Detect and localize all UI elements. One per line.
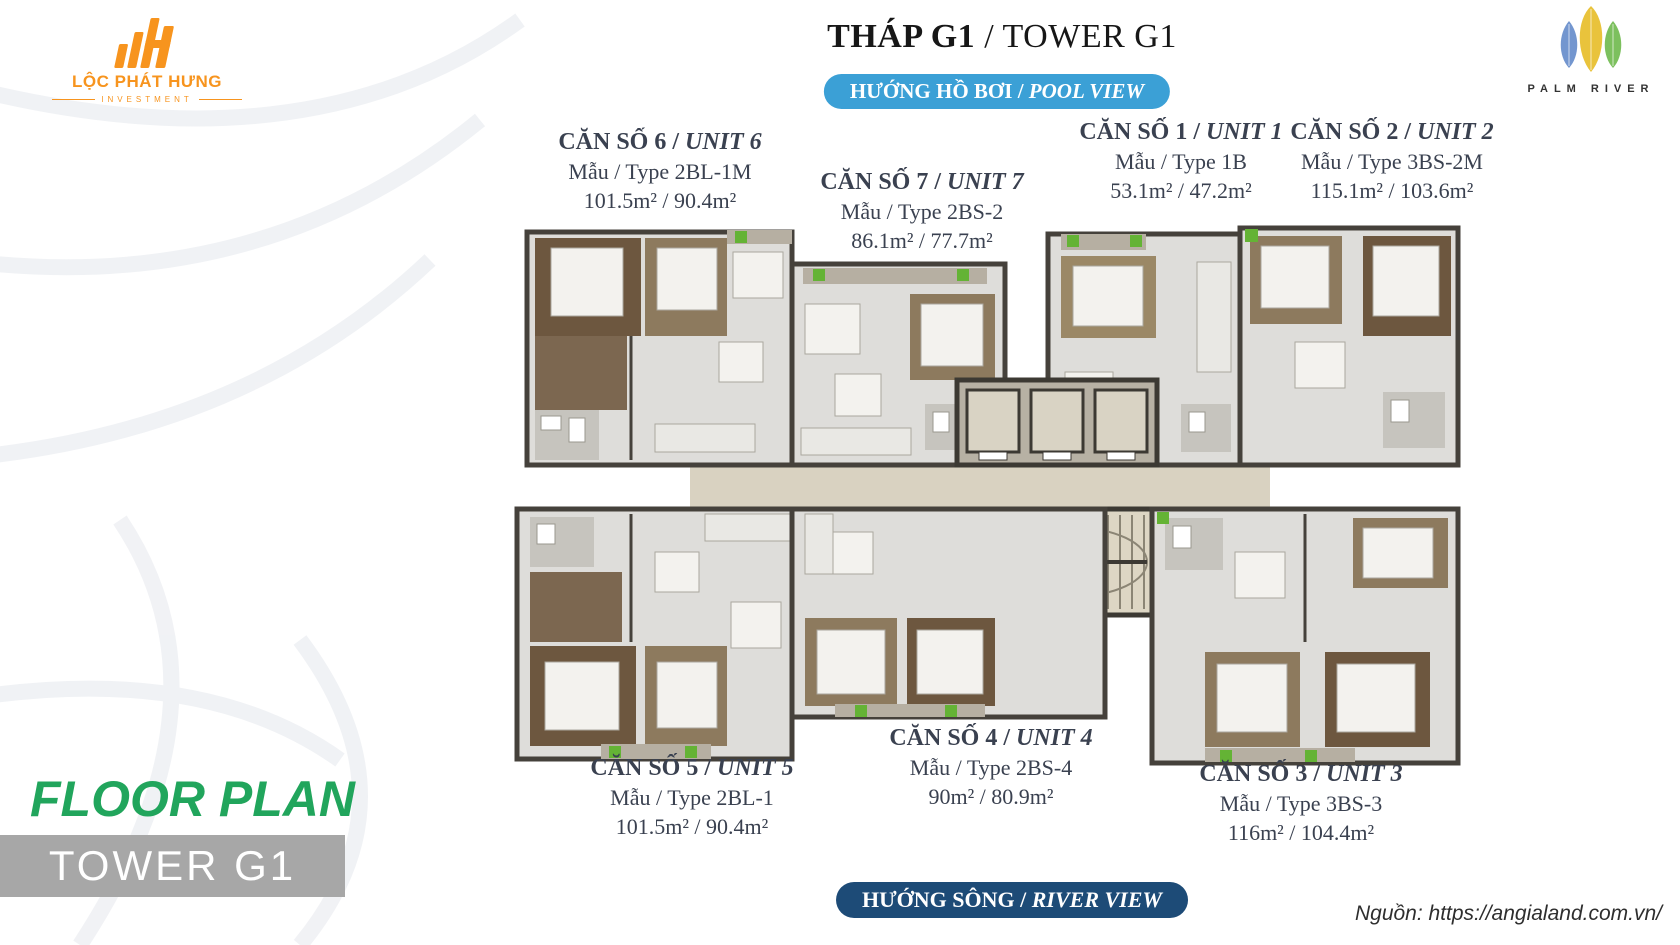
developer-division: INVESTMENT — [52, 95, 242, 104]
unit-5-name-vi: CĂN SỐ 5 — [590, 755, 698, 781]
unit-2-plan — [1240, 228, 1458, 465]
unit-4-type: Mẫu / Type 2BS-4 — [889, 753, 1092, 782]
unit-2-name-vi: CĂN SỐ 2 — [1290, 119, 1398, 145]
source-credit: Nguồn: https://angialand.com.vn/ — [1355, 902, 1662, 926]
developer-name: LỘC PHÁT HƯNG — [52, 72, 242, 92]
unit-2-area: 115.1m² / 103.6m² — [1290, 176, 1493, 205]
unit-6-type: Mẫu / Type 2BL-1M — [558, 157, 761, 186]
unit-6-name-vi: CĂN SỐ 6 — [558, 129, 666, 155]
floor-plan-drawing — [505, 222, 1465, 767]
unit-2-type: Mẫu / Type 3BS-2M — [1290, 147, 1493, 176]
corridor — [690, 465, 1270, 509]
divider-line — [52, 99, 95, 100]
unit-3-area: 116m² / 104.4m² — [1199, 818, 1402, 847]
unit-7-area: 86.1m² / 77.7m² — [820, 226, 1023, 255]
title-en: TOWER G1 — [1003, 18, 1177, 55]
river-view-badge: HƯỚNG SÔNG / RIVER VIEW — [836, 882, 1188, 918]
unit-5-name-en: UNIT 5 — [717, 755, 794, 781]
unit-5-area: 101.5m² / 90.4m² — [590, 812, 793, 841]
unit-3-name-vi: CĂN SỐ 3 — [1199, 761, 1307, 787]
unit-4-name-vi: CĂN SỐ 4 — [889, 725, 997, 751]
unit-7-name-vi: CĂN SỐ 7 — [820, 169, 928, 195]
unit-6-label: CĂN SỐ 6 / UNIT 6 Mẫu / Type 2BL-1M 101.… — [558, 128, 761, 215]
project-logo: PALM RIVER — [1516, 4, 1666, 95]
unit-2-label: CĂN SỐ 2 / UNIT 2 Mẫu / Type 3BS-2M 115.… — [1290, 118, 1493, 205]
pool-view-badge: HƯỚNG HỒ BƠI / POOL VIEW — [824, 74, 1170, 109]
title-vi: THÁP G1 — [827, 18, 975, 55]
unit-3-label: CĂN SỐ 3 / UNIT 3 Mẫu / Type 3BS-3 116m²… — [1199, 760, 1402, 847]
unit-4-label: CĂN SỐ 4 / UNIT 4 Mẫu / Type 2BS-4 90m² … — [889, 724, 1092, 811]
unit-5-type: Mẫu / Type 2BL-1 — [590, 783, 793, 812]
unit-1-name-vi: CĂN SỐ 1 — [1079, 119, 1187, 145]
unit-1-type: Mẫu / Type 1B — [1079, 147, 1282, 176]
unit-4-plan — [792, 509, 1105, 717]
elevator-core — [957, 380, 1157, 465]
unit-1-label: CĂN SỐ 1 / UNIT 1 Mẫu / Type 1B 53.1m² /… — [1079, 118, 1282, 205]
developer-logo: LỘC PHÁT HƯNG INVESTMENT — [52, 12, 242, 104]
developer-logo-icon — [108, 12, 186, 70]
page-title: THÁP G1 / TOWER G1 — [827, 18, 1177, 56]
unit-6-plan — [527, 230, 792, 465]
unit-3-name-en: UNIT 3 — [1326, 761, 1403, 787]
tower-label-bar: TOWER G1 — [0, 835, 345, 897]
unit-4-area: 90m² / 80.9m² — [889, 782, 1092, 811]
unit-2-name-en: UNIT 2 — [1417, 119, 1494, 145]
unit-7-label: CĂN SỐ 7 / UNIT 7 Mẫu / Type 2BS-2 86.1m… — [820, 168, 1023, 255]
unit-1-area: 53.1m² / 47.2m² — [1079, 176, 1282, 205]
palm-leaves-icon — [1543, 4, 1639, 76]
divider-line — [199, 99, 242, 100]
unit-7-name-en: UNIT 7 — [947, 169, 1024, 195]
unit-5-label: CĂN SỐ 5 / UNIT 5 Mẫu / Type 2BL-1 101.5… — [590, 754, 793, 841]
unit-6-name-en: UNIT 6 — [685, 129, 762, 155]
unit-3-type: Mẫu / Type 3BS-3 — [1199, 789, 1402, 818]
unit-7-type: Mẫu / Type 2BS-2 — [820, 197, 1023, 226]
unit-3-plan — [1152, 509, 1458, 763]
unit-5-plan — [517, 509, 792, 759]
unit-4-name-en: UNIT 4 — [1016, 725, 1093, 751]
unit-6-area: 101.5m² / 90.4m² — [558, 186, 761, 215]
floor-plan-caption: FLOOR PLAN — [30, 770, 355, 828]
floor-plan-slide: LỘC PHÁT HƯNG INVESTMENT PALM RIVER THÁP… — [0, 0, 1680, 945]
tower-label: TOWER G1 — [0, 835, 345, 897]
project-name: PALM RIVER — [1516, 83, 1666, 95]
unit-1-name-en: UNIT 1 — [1206, 119, 1283, 145]
